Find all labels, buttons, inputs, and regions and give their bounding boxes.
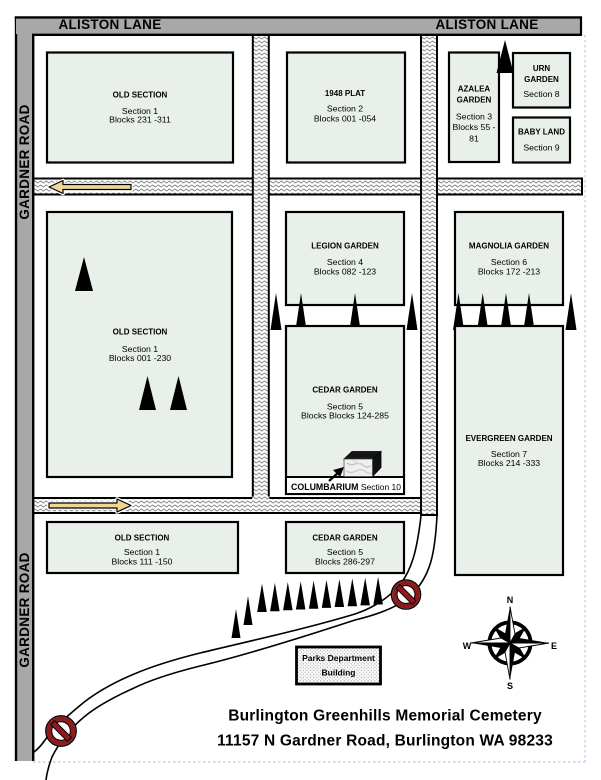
svg-text:81: 81 [469, 134, 479, 144]
svg-text:CEDAR GARDEN: CEDAR GARDEN [312, 386, 378, 395]
svg-text:Section 8: Section 8 [523, 89, 559, 99]
svg-text:Section 4: Section 4 [327, 257, 363, 267]
svg-text:Blocks 231 -311: Blocks 231 -311 [109, 115, 171, 125]
svg-text:Section 1: Section 1 [124, 547, 160, 557]
svg-text:1948 PLAT: 1948 PLAT [325, 89, 365, 98]
svg-text:Burlington Greenhills Memorial: Burlington Greenhills Memorial Cemetery [228, 708, 542, 725]
svg-text:AZALEA: AZALEA [458, 85, 491, 94]
svg-text:LEGION GARDEN: LEGION GARDEN [311, 242, 379, 251]
svg-text:COLUMBARIUM Section 10: COLUMBARIUM Section 10 [291, 482, 401, 492]
svg-text:Blocks 55 -: Blocks 55 - [453, 122, 496, 132]
svg-text:Section 3: Section 3 [456, 112, 492, 122]
svg-text:GARDEN: GARDEN [457, 96, 492, 105]
svg-text:Blocks 082 -123: Blocks 082 -123 [314, 267, 376, 277]
svg-text:N: N [507, 595, 514, 605]
svg-text:Blocks 172 -213: Blocks 172 -213 [478, 267, 540, 277]
svg-text:W: W [463, 641, 472, 651]
svg-text:Section 2: Section 2 [327, 104, 363, 114]
svg-text:Parks Department: Parks Department [302, 653, 375, 663]
svg-text:Blocks 286-297: Blocks 286-297 [315, 557, 375, 567]
svg-text:MAGNOLIA GARDEN: MAGNOLIA GARDEN [469, 242, 549, 251]
svg-text:GARDEN: GARDEN [524, 75, 559, 84]
svg-text:CEDAR GARDEN: CEDAR GARDEN [312, 534, 378, 543]
svg-text:Blocks Blocks 124-285: Blocks Blocks 124-285 [301, 411, 389, 421]
svg-text:OLD SECTION: OLD SECTION [113, 328, 168, 337]
svg-text:ALISTON LANE: ALISTON LANE [435, 17, 538, 32]
svg-text:URN: URN [533, 64, 551, 73]
svg-text:OLD SECTION: OLD SECTION [113, 91, 168, 100]
svg-text:Blocks 214 -333: Blocks 214 -333 [478, 458, 540, 468]
svg-text:Blocks 001 -054: Blocks 001 -054 [314, 114, 376, 124]
svg-text:Blocks 111 -150: Blocks 111 -150 [111, 557, 172, 567]
svg-text:11157 N Gardner Road, Burlingt: 11157 N Gardner Road, Burlington WA 9823… [217, 733, 553, 750]
svg-text:GARDNER ROAD: GARDNER ROAD [17, 104, 32, 219]
svg-text:E: E [551, 641, 557, 651]
svg-text:Section 6: Section 6 [491, 257, 527, 267]
svg-text:S: S [507, 681, 513, 691]
svg-text:ALISTON LANE: ALISTON LANE [58, 17, 161, 32]
svg-text:BABY LAND: BABY LAND [518, 128, 565, 137]
svg-text:GARDNER ROAD: GARDNER ROAD [17, 552, 32, 667]
svg-text:Section 5: Section 5 [327, 547, 363, 557]
svg-text:Section 9: Section 9 [523, 143, 559, 153]
svg-text:Building: Building [322, 668, 356, 678]
svg-text:OLD SECTION: OLD SECTION [115, 534, 170, 543]
svg-text:Blocks 001 -230: Blocks 001 -230 [109, 353, 171, 363]
svg-text:EVERGREEN GARDEN: EVERGREEN GARDEN [465, 434, 552, 443]
